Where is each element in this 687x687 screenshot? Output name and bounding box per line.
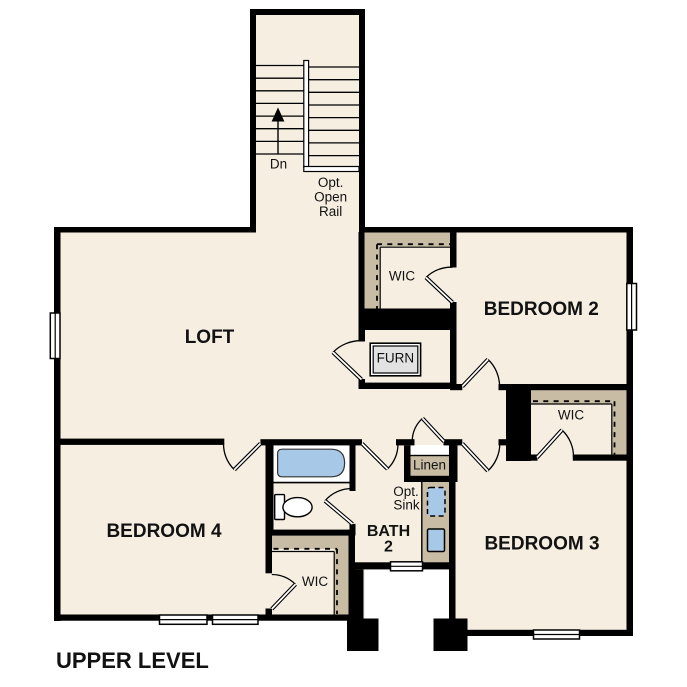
svg-text:Linen: Linen bbox=[413, 458, 446, 473]
svg-text:WIC: WIC bbox=[558, 408, 584, 423]
svg-text:BEDROOM 3: BEDROOM 3 bbox=[484, 534, 599, 555]
svg-text:LOFT: LOFT bbox=[185, 327, 235, 348]
svg-text:UPPER LEVEL: UPPER LEVEL bbox=[56, 648, 209, 673]
svg-text:Dn: Dn bbox=[270, 157, 287, 172]
svg-text:WIC: WIC bbox=[302, 574, 328, 589]
svg-text:FURN: FURN bbox=[377, 350, 415, 365]
svg-text:2: 2 bbox=[384, 539, 393, 556]
svg-text:BEDROOM 4: BEDROOM 4 bbox=[106, 521, 222, 542]
svg-text:Rail: Rail bbox=[319, 204, 342, 219]
svg-text:WIC: WIC bbox=[389, 269, 415, 284]
svg-text:Open: Open bbox=[314, 190, 347, 205]
svg-text:BATH: BATH bbox=[367, 523, 410, 540]
svg-text:Opt.: Opt. bbox=[318, 175, 344, 190]
svg-text:Sink: Sink bbox=[393, 498, 420, 513]
svg-text:BEDROOM 2: BEDROOM 2 bbox=[484, 299, 599, 320]
